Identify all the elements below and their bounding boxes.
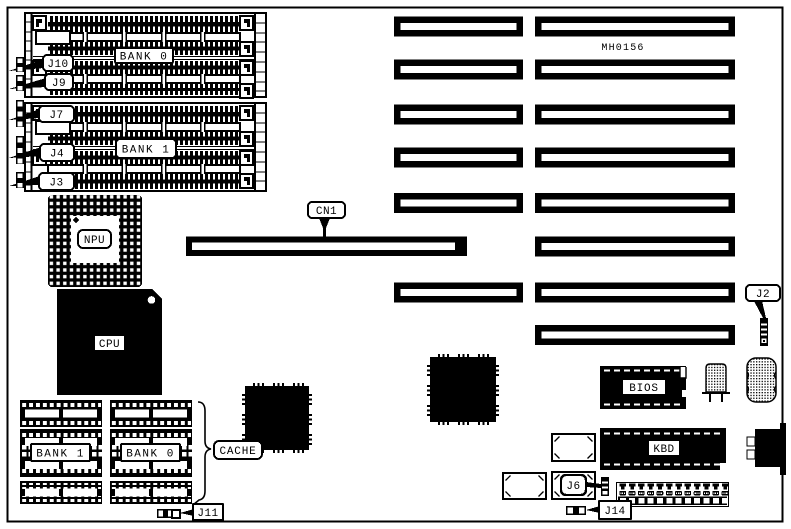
- svg-text:J2: J2: [756, 289, 770, 301]
- svg-text:J10: J10: [47, 59, 68, 71]
- svg-text:BANK 1: BANK 1: [122, 144, 171, 156]
- svg-text:J14: J14: [604, 506, 625, 518]
- svg-text:CN1: CN1: [316, 206, 337, 218]
- svg-text:BANK 0: BANK 0: [120, 51, 169, 63]
- svg-text:KBD: KBD: [653, 444, 674, 456]
- svg-text:J4: J4: [50, 148, 64, 160]
- svg-text:BIOS: BIOS: [629, 383, 659, 395]
- svg-text:CACHE: CACHE: [219, 446, 256, 458]
- svg-text:CPU: CPU: [99, 339, 120, 351]
- svg-text:MH0156: MH0156: [601, 43, 644, 54]
- svg-text:NPU: NPU: [84, 235, 105, 247]
- svg-text:J6: J6: [566, 481, 580, 493]
- svg-text:J3: J3: [49, 177, 63, 189]
- svg-text:BANK 0: BANK 0: [126, 448, 175, 460]
- svg-text:BANK 1: BANK 1: [36, 448, 85, 460]
- svg-text:J9: J9: [52, 78, 66, 90]
- svg-text:J11: J11: [197, 508, 218, 520]
- svg-text:J7: J7: [49, 110, 63, 122]
